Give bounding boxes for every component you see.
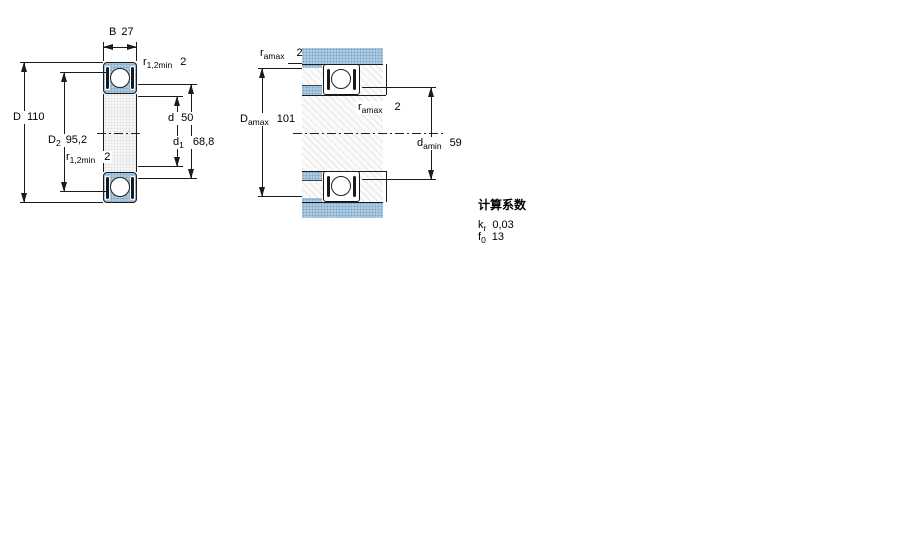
shaft-surface-line-top [302, 95, 386, 96]
arrow-right [127, 44, 137, 50]
dim-value: 2 [102, 151, 112, 163]
arrow-up [21, 62, 27, 72]
extension-line [20, 202, 103, 203]
dim-value: 95,2 [66, 134, 87, 146]
dim-value: 59 [450, 137, 462, 149]
shaft-shoulder-bottom [302, 171, 322, 181]
center-line [97, 133, 143, 134]
dim-value: 68,8 [193, 136, 214, 148]
dim-line-D [24, 62, 25, 203]
ramax-leader-line [288, 63, 302, 64]
dim-label-ramax-shaft: ramax2 [356, 101, 403, 114]
dim-symbol: D [240, 113, 248, 125]
housing-block-top [302, 48, 383, 64]
seal-left [106, 67, 109, 89]
shaft-surface-line-bottom [302, 171, 386, 172]
dim-symbol: d [168, 112, 174, 124]
arrow-up [259, 68, 265, 78]
dim-value: 27 [121, 26, 133, 38]
seal-left [327, 69, 330, 90]
dim-value: 2 [394, 101, 400, 113]
bearing-drawing-canvas: B27 D110 D295,2 d50 d168,8 r1,2min2 r1,2… [0, 0, 900, 560]
arrow-down [188, 169, 194, 179]
factor-symbol: k [478, 219, 484, 231]
dim-value: 2 [180, 56, 186, 68]
factor-f0: f013 [478, 231, 504, 244]
dim-subscript: 2 [56, 138, 61, 148]
arrow-down [61, 182, 67, 192]
ball-top [331, 69, 351, 89]
dim-label-d: d50 [166, 112, 195, 125]
dim-value: 110 [27, 111, 45, 123]
dim-subscript: amin [423, 141, 441, 151]
arrow-up [61, 72, 67, 82]
arrow-up [188, 84, 194, 94]
arrow-down [174, 157, 180, 167]
dim-label-B: B27 [109, 26, 134, 39]
dim-label-damin: damin59 [415, 137, 464, 150]
seal-left [106, 177, 109, 199]
dim-label-ramax-top: ramax2 [260, 47, 303, 60]
housing-bore-line-top [302, 64, 383, 65]
dim-label-Damax: Damax101 [238, 113, 297, 126]
arrow-up [174, 96, 180, 106]
seal-left [327, 176, 330, 197]
dim-label-d1: d168,8 [171, 136, 216, 149]
dim-symbol: B [109, 26, 116, 38]
ball-bottom [331, 176, 351, 196]
dim-label-r12min-bottom: r1,2min2 [66, 151, 112, 164]
seal-right [353, 69, 356, 90]
dim-subscript: 1,2min [147, 60, 173, 70]
dim-symbol: D [48, 134, 56, 146]
step-line-top [386, 64, 387, 95]
dim-subscript: 1 [179, 140, 184, 150]
dim-label-r12min-top: r1,2min2 [143, 56, 186, 69]
dim-value: 50 [181, 112, 193, 124]
extension-line [60, 72, 108, 73]
factor-value: 13 [492, 231, 504, 243]
factor-value: 0,03 [492, 219, 513, 231]
dim-label-D2: D295,2 [46, 134, 89, 147]
ball-bottom [110, 177, 130, 197]
factor-subscript: 0 [481, 235, 486, 245]
extension-line [362, 179, 436, 180]
dim-subscript: amax [362, 105, 383, 115]
dim-line-D2 [64, 72, 65, 192]
extension-line [362, 87, 436, 88]
ball-top [110, 68, 130, 88]
seal-right [131, 67, 134, 89]
step-line-bottom [386, 171, 387, 202]
arrow-down [428, 170, 434, 180]
seal-right [131, 177, 134, 199]
dim-line-damin [431, 87, 432, 180]
dim-symbol: D [13, 111, 21, 123]
arrow-down [21, 193, 27, 203]
center-line [293, 133, 446, 134]
dim-subscript: 1,2min [70, 155, 96, 165]
arrow-up [428, 87, 434, 97]
housing-block-bottom [302, 202, 383, 218]
calculation-factors-title: 计算系数 [478, 198, 526, 212]
dim-line-Damax [262, 68, 263, 197]
dim-label-D: D110 [11, 111, 47, 124]
dim-subscript: amax [248, 117, 269, 127]
extension-line [60, 191, 108, 192]
seal-right [353, 176, 356, 197]
shaft-shoulder-top [302, 85, 322, 95]
dim-subscript: amax [264, 51, 285, 61]
dim-line-d1 [191, 84, 192, 179]
arrow-left [103, 44, 113, 50]
dim-value: 101 [277, 113, 295, 125]
housing-bore-line-bottom [302, 202, 383, 203]
dim-value: 2 [296, 47, 302, 59]
arrow-down [259, 187, 265, 197]
extension-line [20, 62, 103, 63]
